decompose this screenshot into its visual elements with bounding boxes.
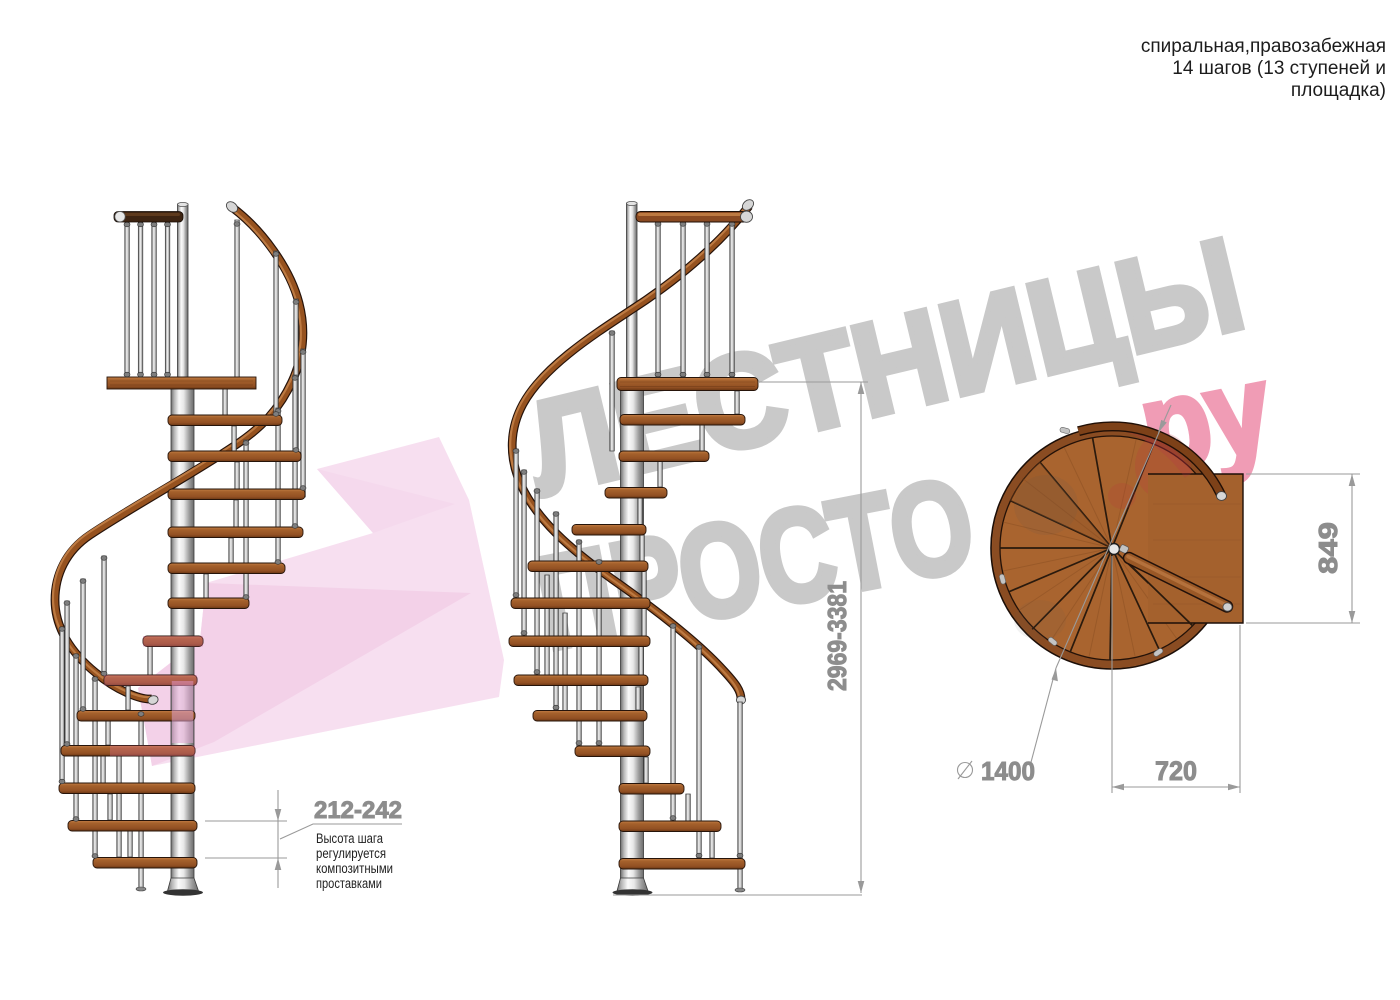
svg-text:14 шагов (13 ступеней и: 14 шагов (13 ступеней и	[1172, 58, 1386, 79]
svg-text:720: 720	[1155, 756, 1197, 786]
svg-text:1400: 1400	[981, 756, 1035, 786]
svg-text:212-242: 212-242	[314, 797, 402, 824]
svg-text:площадка): площадка)	[1291, 80, 1386, 101]
svg-text:2969-3381: 2969-3381	[822, 581, 852, 691]
svg-text:Высота шага: Высота шага	[316, 831, 383, 846]
svg-text:композитными: композитными	[316, 861, 393, 876]
svg-text:849: 849	[1313, 522, 1343, 574]
svg-text:спиральная,правозабежная: спиральная,правозабежная	[1141, 36, 1386, 57]
svg-text:регулируется: регулируется	[316, 846, 386, 861]
svg-text:проставками: проставками	[316, 876, 382, 891]
